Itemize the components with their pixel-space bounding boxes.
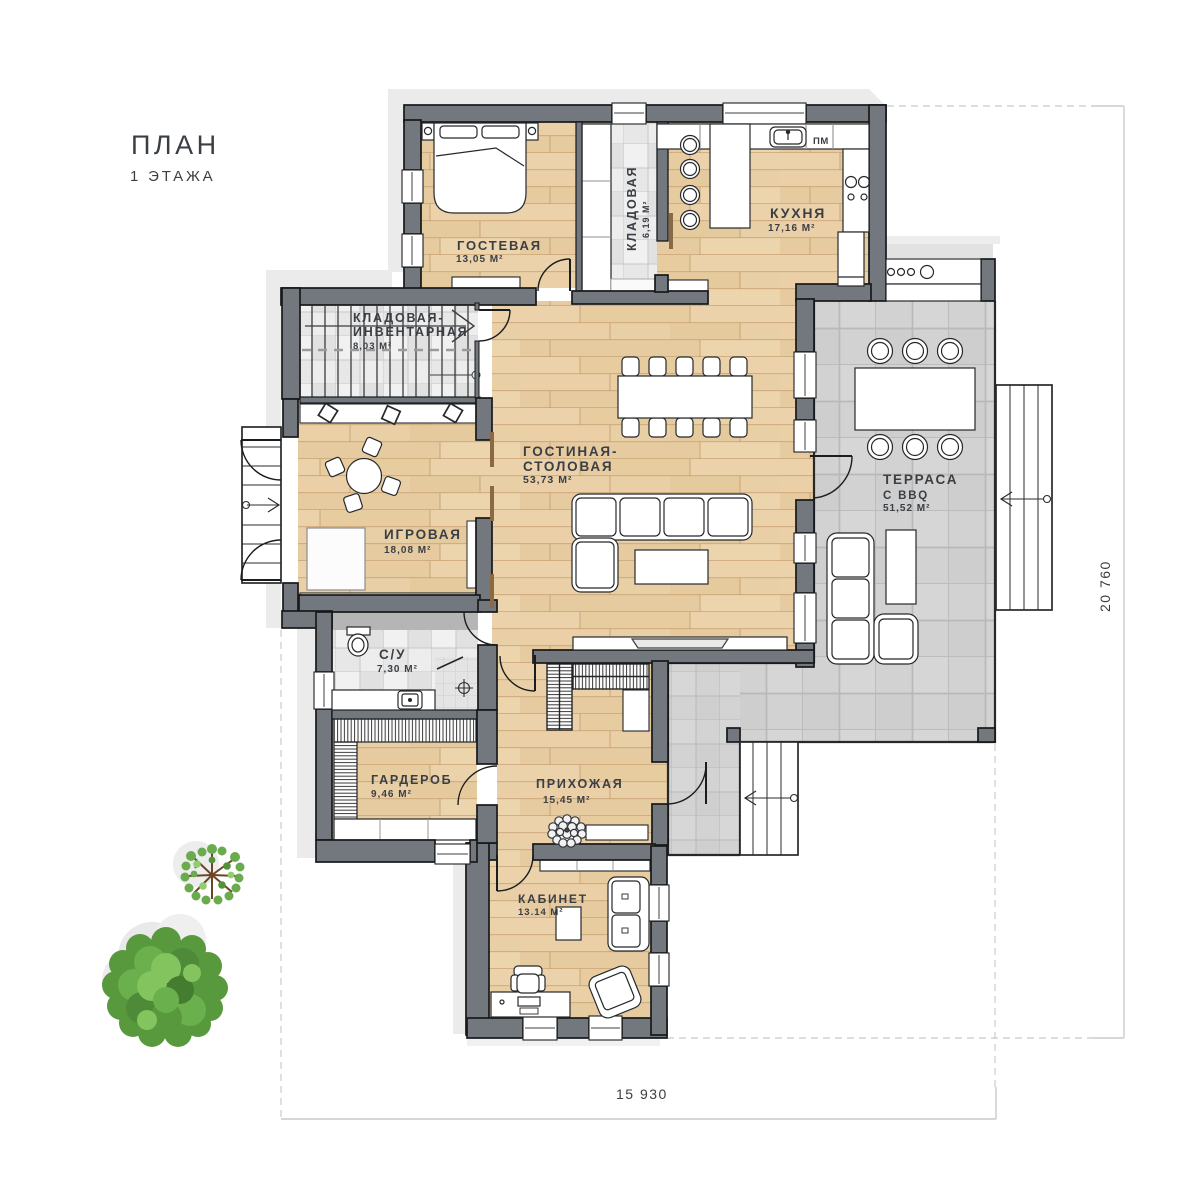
svg-text:КУХНЯ: КУХНЯ [770, 205, 826, 221]
svg-text:18,08 М²: 18,08 М² [384, 545, 431, 556]
svg-text:ГОСТЕВАЯ: ГОСТЕВАЯ [457, 238, 542, 253]
svg-text:ПРИХОЖАЯ: ПРИХОЖАЯ [536, 777, 624, 791]
svg-text:ИНВЕНТАРНАЯ: ИНВЕНТАРНАЯ [353, 325, 468, 339]
svg-text:15 930: 15 930 [616, 1086, 668, 1102]
svg-text:КЛАДОВАЯ-: КЛАДОВАЯ- [353, 311, 444, 325]
svg-text:15,45 М²: 15,45 М² [543, 795, 590, 806]
svg-text:ПМ: ПМ [813, 136, 829, 147]
svg-text:КЛАДОВАЯ: КЛАДОВАЯ [625, 166, 639, 251]
svg-text:ТЕРРАСА: ТЕРРАСА [883, 472, 958, 487]
svg-text:ИГРОВАЯ: ИГРОВАЯ [384, 527, 462, 542]
svg-text:13,05 М²: 13,05 М² [456, 254, 503, 265]
svg-text:ГАРДЕРОБ: ГАРДЕРОБ [371, 773, 452, 787]
svg-text:6,19 М²: 6,19 М² [641, 200, 651, 238]
svg-text:9,46 М²: 9,46 М² [371, 789, 412, 800]
svg-text:СТОЛОВАЯ: СТОЛОВАЯ [523, 459, 613, 474]
svg-text:С/У: С/У [379, 647, 406, 662]
svg-text:ПЛАН: ПЛАН [131, 130, 220, 160]
svg-text:ГОСТИНАЯ-: ГОСТИНАЯ- [523, 444, 618, 459]
svg-text:7,30 М²: 7,30 М² [377, 664, 418, 675]
svg-text:13.14 М²: 13.14 М² [518, 907, 564, 918]
svg-text:8,03 М²: 8,03 М² [353, 341, 392, 352]
svg-text:20 760: 20 760 [1097, 560, 1113, 612]
svg-text:С BBQ: С BBQ [883, 490, 929, 502]
svg-text:1 ЭТАЖА: 1 ЭТАЖА [130, 168, 215, 185]
svg-text:КАБИНЕТ: КАБИНЕТ [518, 892, 588, 906]
svg-text:17,16 М²: 17,16 М² [768, 223, 815, 234]
svg-text:53,73 М²: 53,73 М² [523, 474, 572, 486]
svg-text:51,52 М²: 51,52 М² [883, 503, 930, 514]
